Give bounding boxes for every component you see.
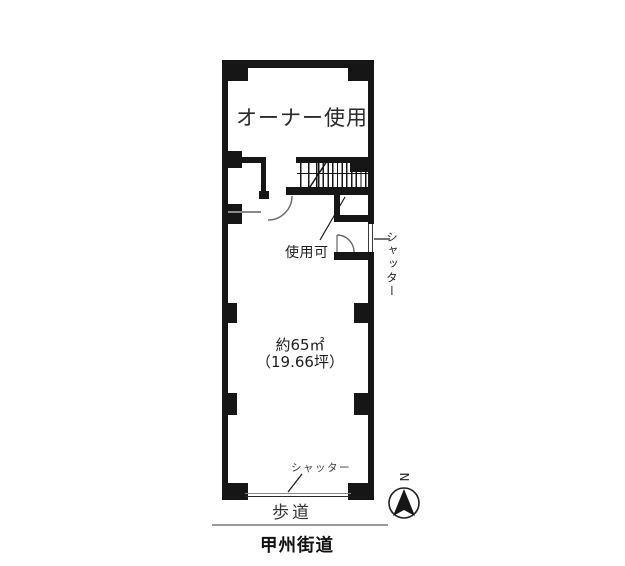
- plan-overlay: [0, 0, 625, 566]
- outer-wall-right-lower: [368, 252, 374, 500]
- room-area-label: 約65㎡ （19.66坪）: [238, 337, 362, 371]
- front-shutter-label: シャッター: [291, 460, 351, 475]
- side-shutter-line-inner: [372, 224, 373, 252]
- side-entrance-door-arc: [337, 235, 354, 252]
- owner-area-label: オーナー使用: [228, 102, 376, 132]
- front-shutter-line-gray: [245, 493, 351, 495]
- storage-room-wall: [261, 157, 266, 195]
- road-label: 甲州街道: [235, 532, 359, 557]
- outer-wall-right-upper: [368, 60, 374, 224]
- room-area-sqm: 約65㎡: [238, 337, 362, 354]
- pillar-room-left-b: [222, 393, 237, 415]
- compass-north-label: N: [397, 470, 411, 484]
- stair-treads-dense: [318, 163, 368, 187]
- sidewalk-label: 歩道: [250, 498, 334, 523]
- usable-label: 使用可: [285, 242, 329, 262]
- stair-treads-sparse: [300, 163, 318, 187]
- pillar-top-right: [348, 60, 374, 81]
- road-divider-line: [212, 524, 388, 526]
- pillar-mid-left-b: [222, 204, 242, 224]
- storage-door-block: [259, 191, 269, 199]
- pillar-bottom-left: [222, 483, 248, 500]
- north-arrow-icon: [393, 489, 415, 516]
- alcove-bottom-wall: [334, 252, 370, 260]
- side-shutter-line-outer: [368, 224, 369, 252]
- alcove-top-wall: [334, 215, 370, 222]
- pillar-room-right-b: [354, 393, 368, 415]
- pillar-bottom-right: [348, 483, 374, 500]
- pillar-top-left: [222, 60, 248, 81]
- stair-bottom-wall: [286, 187, 374, 195]
- storage-room-threshold: [228, 211, 261, 213]
- stair-rail-line: [297, 173, 368, 175]
- north-compass: [389, 488, 419, 518]
- pillar-room-left-a: [222, 303, 237, 323]
- pillar-mid-left-a: [222, 151, 242, 168]
- storage-door-arc: [268, 196, 292, 220]
- pillar-room-right-a: [354, 303, 368, 323]
- side-shutter-label: シャッター: [384, 231, 400, 305]
- compass-circle: [389, 488, 419, 518]
- front-shutter-leader-line: [288, 474, 302, 492]
- room-area-tsubo: （19.66坪）: [238, 354, 362, 371]
- floor-plan-canvas: オーナー使用 使用可 シャッター 約65㎡ （19.66坪） シャッター 歩道 …: [0, 0, 625, 566]
